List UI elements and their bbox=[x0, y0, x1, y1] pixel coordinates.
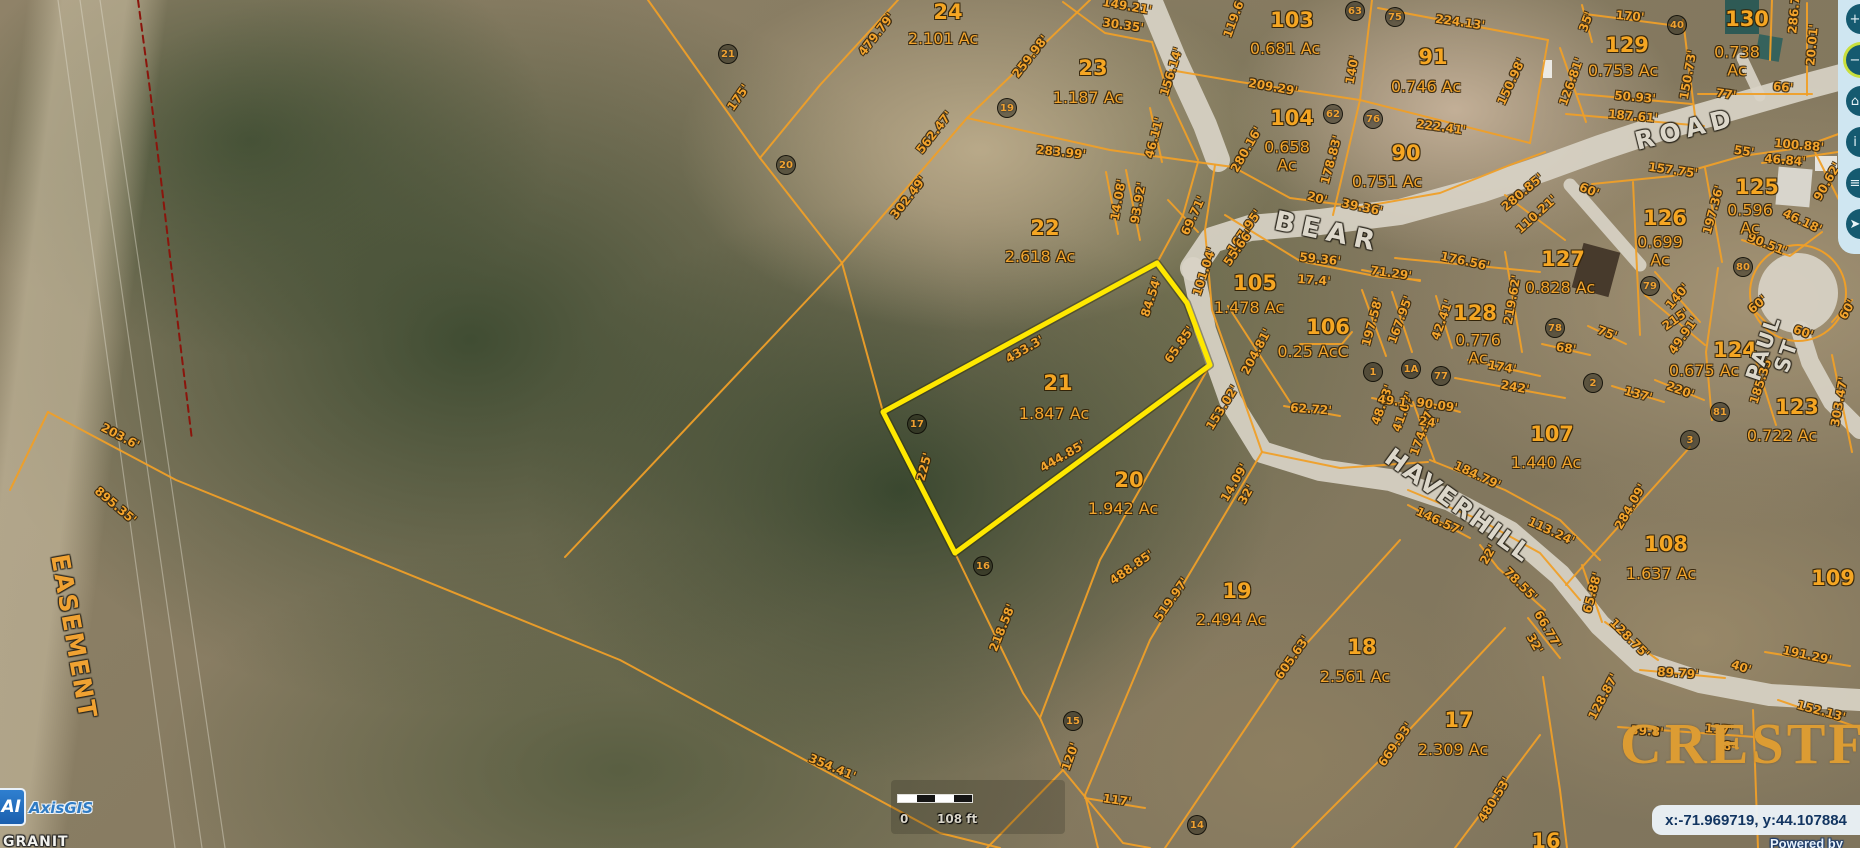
parcel-number: 19 bbox=[1222, 579, 1251, 603]
building-roof bbox=[1775, 167, 1812, 208]
parcel-number: 23 bbox=[1078, 56, 1107, 80]
parcel-number: 108 bbox=[1644, 532, 1688, 556]
parcel-acreage: 1.637 Ac bbox=[1626, 565, 1696, 583]
map-toolbar: +−⌂i≡➤ bbox=[1838, 0, 1860, 254]
parcel-acreage: 2.618 Ac bbox=[1005, 248, 1075, 266]
parcel-acreage: 0.738 Ac bbox=[1714, 44, 1760, 81]
point-marker[interactable]: 3 bbox=[1680, 430, 1700, 450]
parcel-boundary-line bbox=[1543, 677, 1567, 848]
point-marker[interactable]: 78 bbox=[1545, 318, 1565, 338]
parcel-number: 109 bbox=[1811, 566, 1855, 590]
parcel-acreage: 0.596 Ac bbox=[1727, 202, 1773, 239]
powerline-wire bbox=[80, 0, 202, 848]
parcel-acreage: 1.478 Ac bbox=[1214, 299, 1284, 317]
parcel-acreage: 2.309 Ac bbox=[1418, 741, 1488, 759]
parcel-number: 17 bbox=[1444, 708, 1473, 732]
point-marker[interactable]: 16 bbox=[973, 556, 993, 576]
parcel-acreage: 1.847 Ac bbox=[1019, 405, 1089, 423]
parcel-acreage: 1.187 Ac bbox=[1053, 89, 1123, 107]
parcel-boundary-line bbox=[1530, 40, 1548, 143]
parcel-acreage: 0.681 Ac bbox=[1250, 40, 1320, 58]
parcel-number: 125 bbox=[1735, 175, 1779, 199]
cursor-coordinates-readout: x:-71.969719, y:44.107884 bbox=[1652, 805, 1860, 835]
parcel-acreage: 2.561 Ac bbox=[1320, 668, 1390, 686]
layers-button[interactable]: ≡ bbox=[1846, 168, 1860, 198]
share-button[interactable]: ➤ bbox=[1846, 209, 1860, 239]
identify-button[interactable]: i bbox=[1846, 127, 1860, 157]
parcel-boundary-line bbox=[648, 0, 760, 158]
parcel-acreage: 0.753 Ac bbox=[1588, 62, 1658, 80]
parcel-number: 107 bbox=[1530, 422, 1574, 446]
dimension-label: 170' bbox=[1615, 9, 1645, 25]
parcel-boundary-line bbox=[565, 0, 1090, 557]
scale-bar-segment bbox=[898, 795, 917, 802]
parcel-boundary-line bbox=[1165, 540, 1400, 848]
parcel-acreage: 2.101 Ac bbox=[908, 30, 978, 48]
point-marker[interactable]: 17 bbox=[907, 414, 927, 434]
dimension-label: 89.79' bbox=[1657, 666, 1700, 683]
parcel-number: 103 bbox=[1270, 8, 1314, 32]
parcel-acreage: 0.722 Ac bbox=[1747, 427, 1817, 445]
parcel-number: 24 bbox=[933, 0, 962, 24]
parcel-number: 105 bbox=[1233, 271, 1277, 295]
axisgis-logo-text[interactable]: AxisGIS bbox=[29, 799, 93, 817]
parcel-number: 90 bbox=[1391, 141, 1420, 165]
parcel-number: 91 bbox=[1418, 45, 1447, 69]
powerline-wire bbox=[100, 0, 225, 848]
parcel-number: 130 bbox=[1725, 7, 1769, 31]
scale-bar-segment bbox=[917, 795, 936, 802]
parcel-boundary-line bbox=[842, 263, 883, 412]
scale-bar-segments bbox=[898, 795, 972, 802]
town-watermark: CRESTFIELD bbox=[1620, 710, 1860, 777]
parcel-acreage: 0.675 Ac bbox=[1669, 362, 1739, 380]
point-marker[interactable]: 2 bbox=[1583, 373, 1603, 393]
parcel-acreage: 1.942 Ac bbox=[1088, 500, 1158, 518]
parcel-number: 16 bbox=[1531, 829, 1560, 848]
parcel-number: 20 bbox=[1114, 468, 1143, 492]
parcel-number: 129 bbox=[1605, 33, 1649, 57]
point-marker[interactable]: 20 bbox=[776, 155, 796, 175]
parcel-acreage: 0.751 Ac bbox=[1352, 173, 1422, 191]
dimension-label: 62.72' bbox=[1290, 402, 1333, 419]
powered-by-label: Powered by bbox=[1770, 836, 1843, 848]
point-marker[interactable]: 63 bbox=[1345, 1, 1365, 21]
point-marker[interactable]: 75 bbox=[1385, 7, 1405, 27]
scale-bar-zero-label: 0 bbox=[900, 812, 908, 826]
parcel-boundary-line bbox=[10, 412, 48, 490]
point-marker[interactable]: 40 bbox=[1667, 15, 1687, 35]
scale-bar: 0 108 ft bbox=[891, 780, 1065, 834]
dimension-label: 68' bbox=[1555, 341, 1577, 357]
scale-bar-distance-label: 108 ft bbox=[937, 812, 977, 826]
zoom-out-button[interactable]: − bbox=[1846, 45, 1860, 75]
dimension-label: 24' bbox=[1418, 415, 1440, 431]
granit-attribution: GRANIT bbox=[3, 834, 69, 848]
parcel-number: 127 bbox=[1541, 247, 1585, 271]
point-marker[interactable]: 81 bbox=[1710, 402, 1730, 422]
point-marker[interactable]: 62 bbox=[1323, 104, 1343, 124]
point-marker[interactable]: 77 bbox=[1431, 366, 1451, 386]
parcel-acreage: 0.776 Ac bbox=[1455, 332, 1501, 369]
parcel-number: 128 bbox=[1453, 301, 1497, 325]
parcel-acreage: 0.828 Ac bbox=[1525, 279, 1595, 297]
scale-bar-segment bbox=[954, 795, 973, 802]
point-marker[interactable]: 21 bbox=[718, 44, 738, 64]
scale-bar-segment bbox=[935, 795, 954, 802]
municipal-boundary-line bbox=[138, 0, 192, 440]
point-marker[interactable]: 80 bbox=[1733, 257, 1753, 277]
parcel-boundary-line bbox=[760, 158, 842, 263]
point-marker[interactable]: 76 bbox=[1363, 109, 1383, 129]
point-marker[interactable]: 1 bbox=[1363, 362, 1383, 382]
parcel-number: 104 bbox=[1270, 106, 1314, 130]
parcel-number: 22 bbox=[1030, 216, 1059, 240]
point-marker[interactable]: 19 bbox=[997, 98, 1017, 118]
parcel-acreage: 0.746 Ac bbox=[1391, 78, 1461, 96]
point-marker[interactable]: 1A bbox=[1401, 359, 1421, 379]
parcel-number: 106 bbox=[1306, 315, 1350, 339]
parcel-acreage: 0.658 Ac bbox=[1264, 139, 1310, 176]
parcel-acreage: 0.699 Ac bbox=[1637, 234, 1683, 271]
dimension-label: 66' bbox=[1772, 80, 1794, 96]
zoom-in-button[interactable]: + bbox=[1846, 4, 1860, 34]
parcel-boundary-line bbox=[48, 412, 1000, 848]
home-extent-button[interactable]: ⌂ bbox=[1846, 86, 1860, 116]
parcel-number: 126 bbox=[1643, 206, 1687, 230]
point-marker[interactable]: 14 bbox=[1187, 815, 1207, 835]
dimension-label: 77' bbox=[1715, 87, 1737, 103]
cai-logo[interactable]: AI bbox=[0, 788, 26, 826]
point-marker[interactable]: 79 bbox=[1640, 276, 1660, 296]
dimension-label: 55' bbox=[1733, 144, 1755, 160]
map-canvas[interactable]: 479.79'175'203.6'895.35'354.41'218.58'22… bbox=[0, 0, 1860, 848]
parcel-acreage: 2.494 Ac bbox=[1196, 611, 1266, 629]
parcel-boundary-line bbox=[1063, 770, 1150, 848]
parcel-acreage: 0.25 AcC bbox=[1277, 343, 1348, 361]
dimension-label: 17.4' bbox=[1297, 273, 1331, 289]
parcel-number: 18 bbox=[1347, 635, 1376, 659]
point-marker[interactable]: 15 bbox=[1063, 711, 1083, 731]
parcel-number: 21 bbox=[1043, 371, 1072, 395]
parcel-acreage: 1.440 Ac bbox=[1511, 454, 1581, 472]
